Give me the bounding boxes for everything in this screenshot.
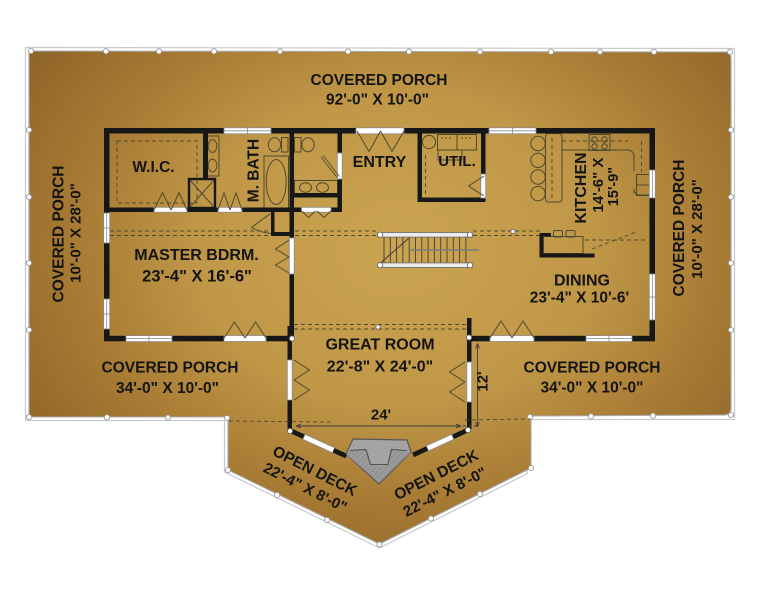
svg-text:23'-4" X 10'-6': 23'-4" X 10'-6' [530,290,629,307]
svg-text:DINING: DINING [554,273,610,290]
svg-text:10'-0" X 28'-0": 10'-0" X 28'-0" [689,179,706,279]
svg-text:COVERED PORCH: COVERED PORCH [311,72,448,89]
svg-text:92'-0" X 10'-0": 92'-0" X 10'-0" [326,92,429,109]
svg-text:22'-8" X 24'-0": 22'-8" X 24'-0" [327,359,433,376]
svg-text:24': 24' [371,407,391,424]
svg-text:COVERED PORCH: COVERED PORCH [524,360,661,377]
svg-text:34'-0" X 10'-0": 34'-0" X 10'-0" [116,380,219,397]
svg-text:KITCHEN: KITCHEN [573,152,590,223]
svg-text:COVERED PORCH: COVERED PORCH [102,360,239,377]
svg-text:COVERED PORCH: COVERED PORCH [671,160,688,297]
svg-text:MASTER BDRM.: MASTER BDRM. [134,247,258,264]
svg-text:W.I.C.: W.I.C. [132,159,174,176]
svg-text:COVERED PORCH: COVERED PORCH [51,166,68,303]
svg-text:14'-6" X: 14'-6" X [590,158,607,213]
svg-text:12': 12' [475,371,492,391]
svg-text:34'-0" X 10'-0": 34'-0" X 10'-0" [540,380,643,397]
svg-text:23'-4" X 16'-6": 23'-4" X 16'-6" [142,268,252,286]
svg-text:UTIL.: UTIL. [438,153,476,170]
svg-text:M. BATH: M. BATH [246,139,263,202]
svg-text:GREAT ROOM: GREAT ROOM [325,337,434,354]
svg-text:ENTRY: ENTRY [353,154,407,171]
svg-text:10'-0" X 28'-0": 10'-0" X 28'-0" [68,183,85,283]
svg-text:15'-9": 15'-9" [606,167,622,206]
